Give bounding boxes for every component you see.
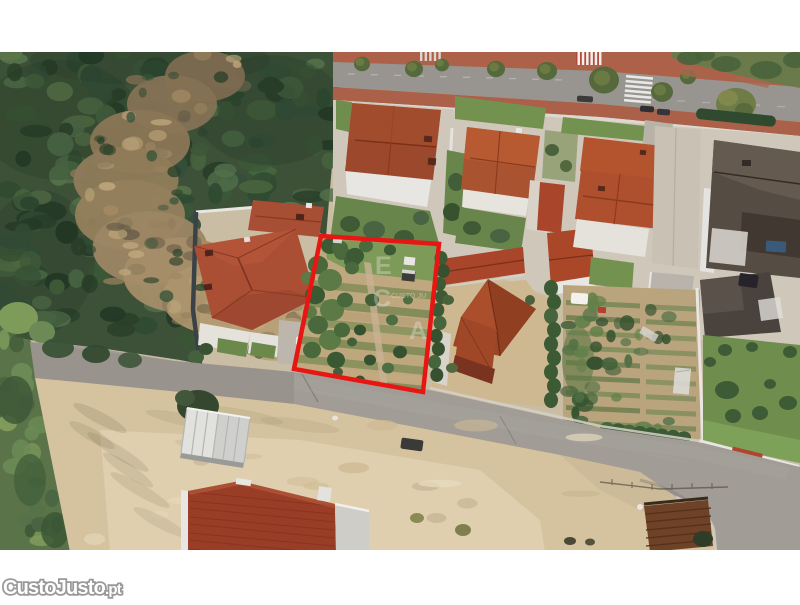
svg-text:CustoJusto.pt: CustoJusto.pt <box>3 577 122 599</box>
svg-text:A: A <box>409 317 427 345</box>
svg-text:C: C <box>373 285 391 313</box>
svg-text:E: E <box>375 252 392 280</box>
svg-text:CUSTO JU: CUSTO JU <box>391 293 426 300</box>
